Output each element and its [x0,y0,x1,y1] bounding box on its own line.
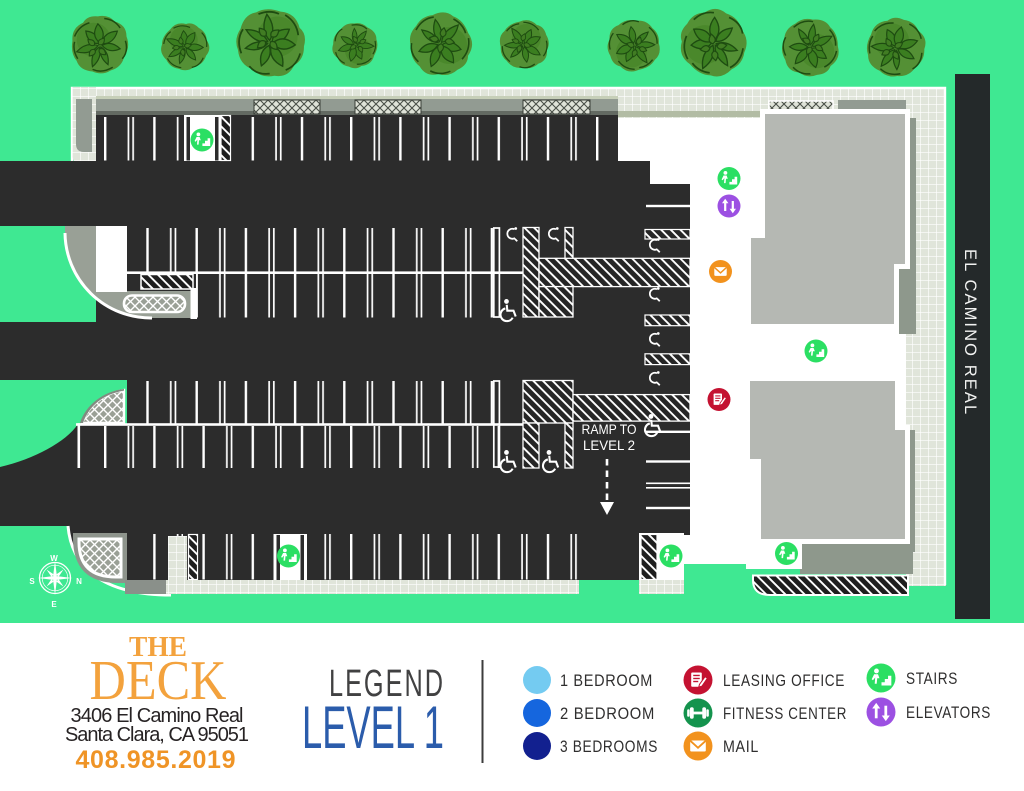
svg-text:ELEVATORS: ELEVATORS [906,703,991,722]
svg-text:FITNESS CENTER: FITNESS CENTER [723,704,847,723]
svg-text:3 BEDROOMS: 3 BEDROOMS [560,737,658,756]
svg-text:EL CAMINO REAL: EL CAMINO REAL [961,249,979,416]
svg-text:MAIL: MAIL [723,737,759,756]
svg-text:1 BEDROOM: 1 BEDROOM [560,671,653,690]
svg-text:LEASING OFFICE: LEASING OFFICE [723,671,845,690]
svg-text:E: E [51,600,57,609]
svg-text:N: N [76,577,82,586]
svg-text:DECK: DECK [90,650,227,712]
svg-text:LEVEL 1: LEVEL 1 [302,694,444,761]
svg-text:2 BEDROOM: 2 BEDROOM [560,704,655,723]
svg-text:RAMP TO: RAMP TO [582,421,637,437]
svg-text:S: S [29,577,35,586]
svg-text:STAIRS: STAIRS [906,669,958,688]
svg-text:LEVEL 2: LEVEL 2 [583,437,635,453]
svg-text:Santa Clara, CA 95051: Santa Clara, CA 95051 [65,724,249,746]
svg-text:408.985.2019: 408.985.2019 [76,746,237,774]
svg-text:W: W [50,554,58,563]
